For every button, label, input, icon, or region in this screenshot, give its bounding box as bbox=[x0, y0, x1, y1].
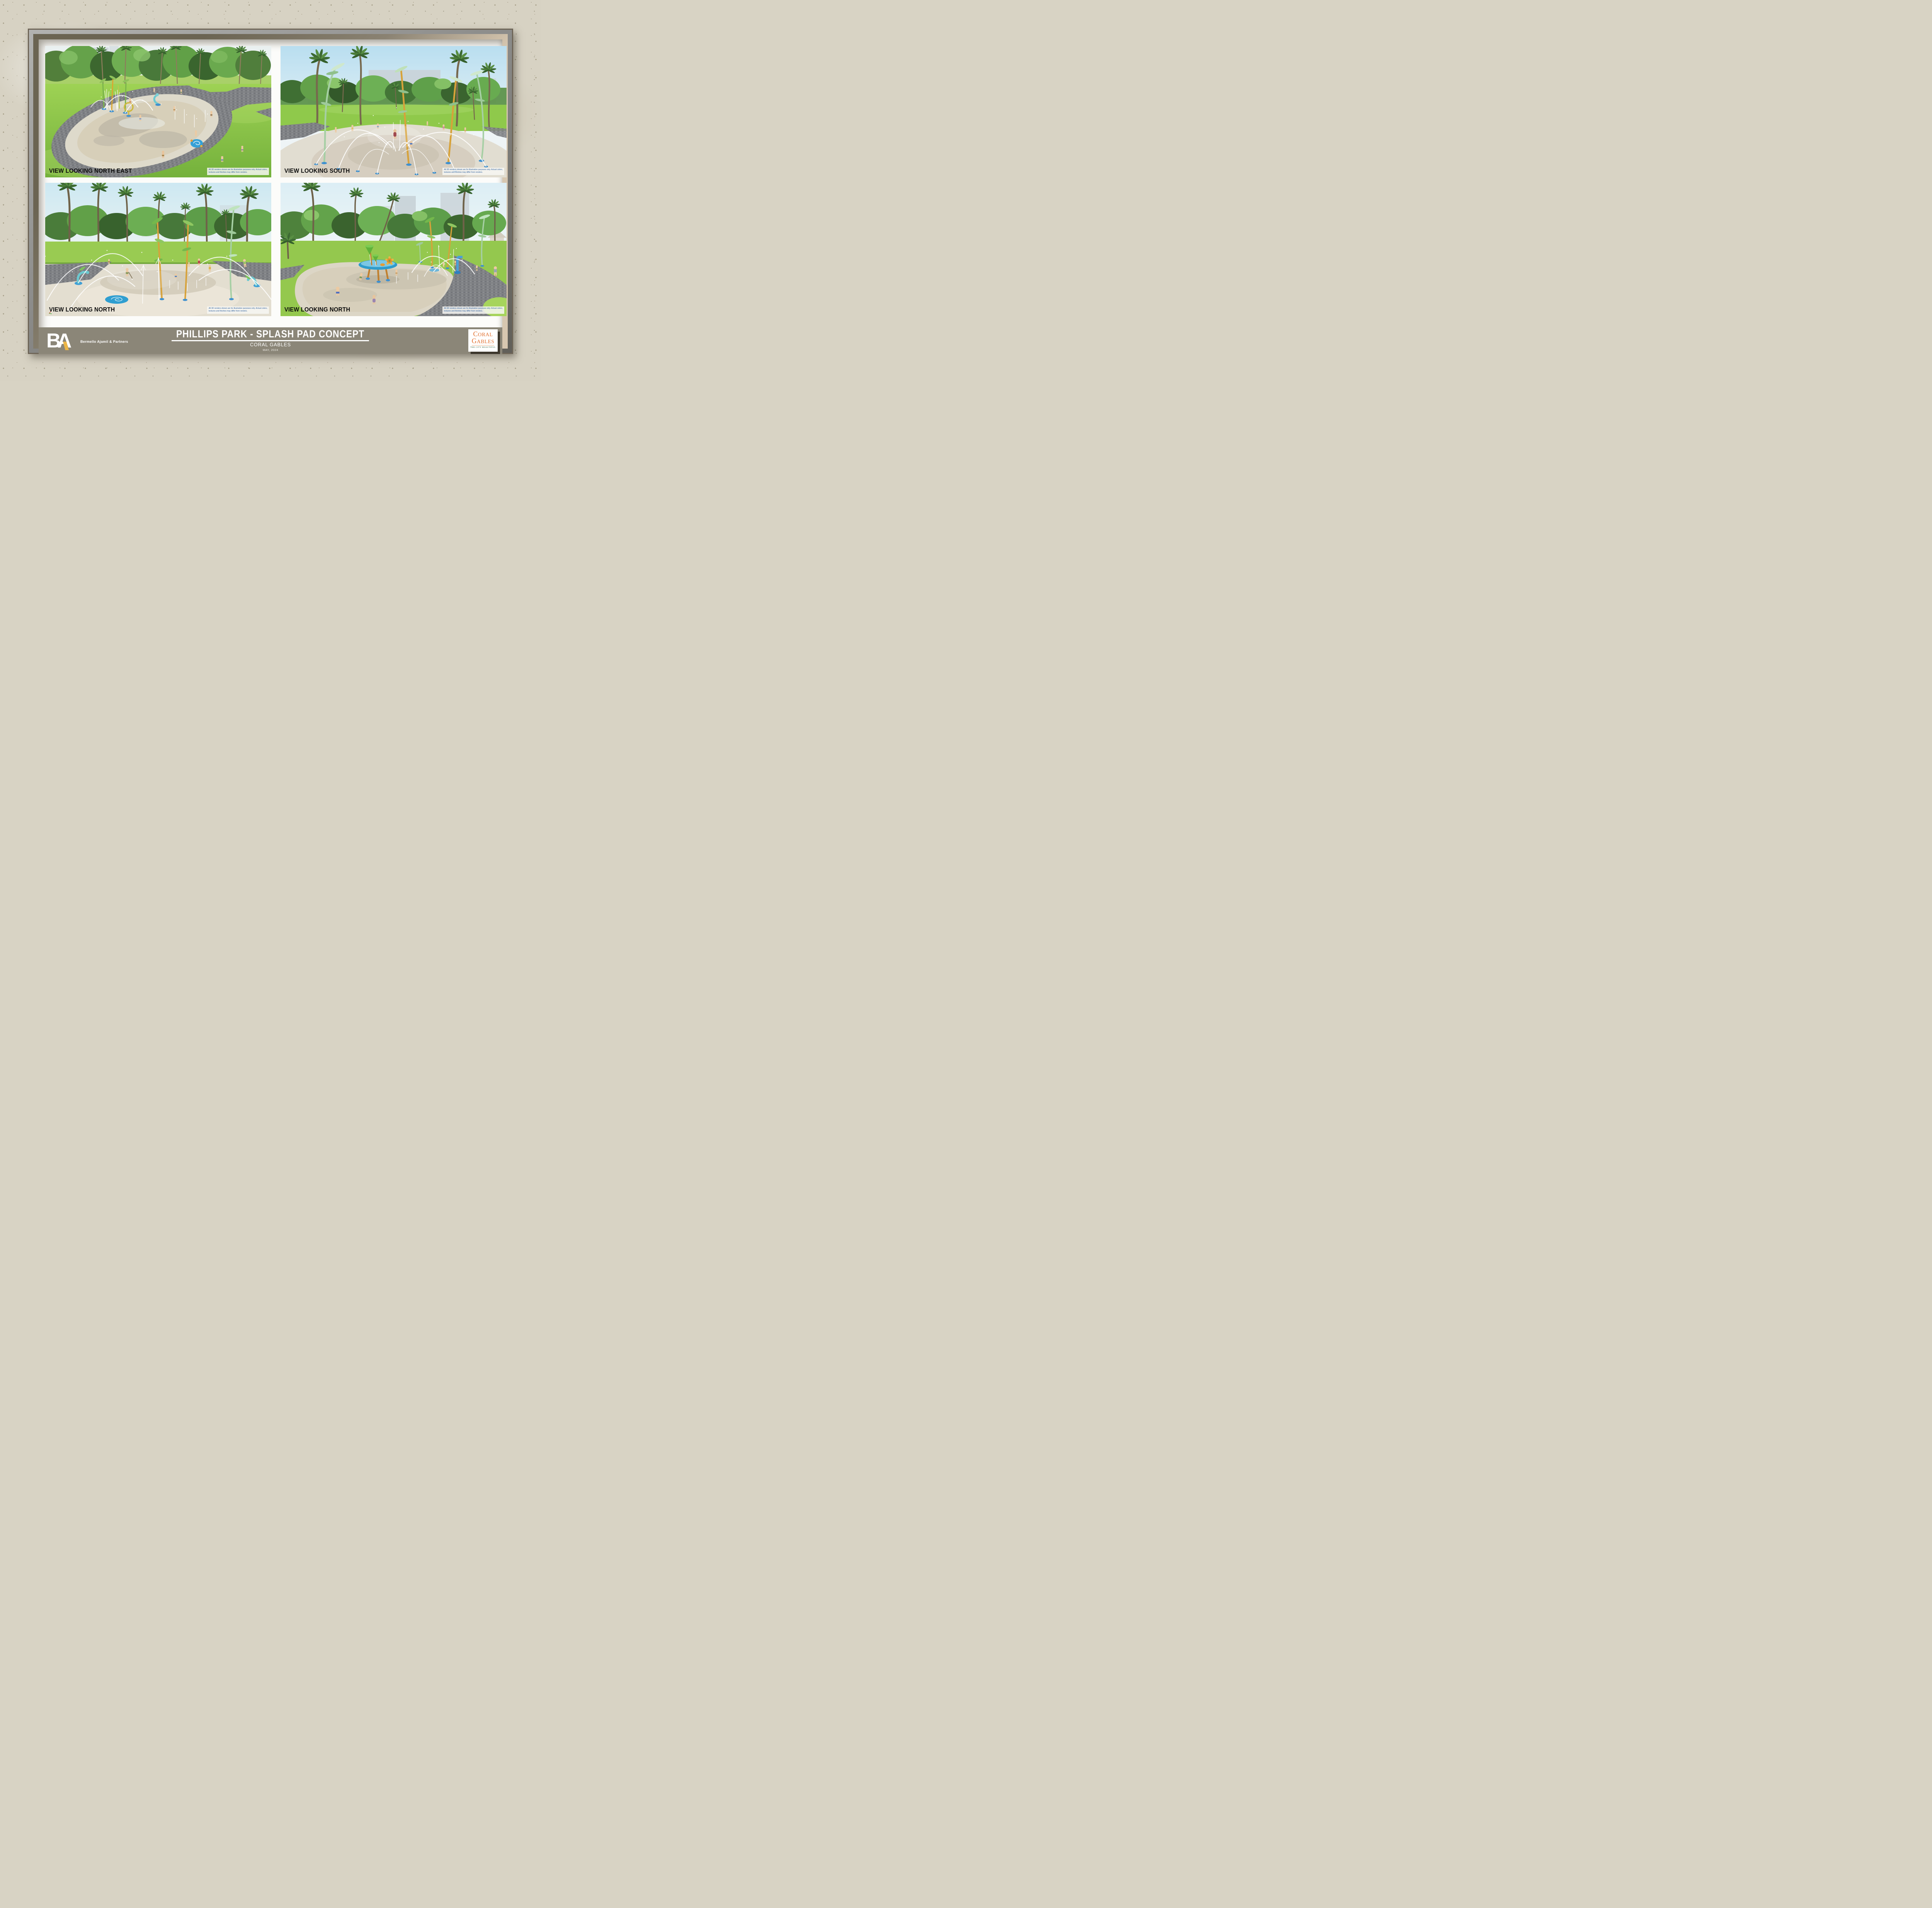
title-block: PHILLIPS PARK - SPLASH PAD CONCEPT CORAL… bbox=[135, 328, 406, 352]
coral-gables-logo-line2: GABLES bbox=[468, 338, 498, 345]
view-label: VIEW LOOKING SOUTH bbox=[284, 168, 350, 175]
render-panel-north-ground: VIEW LOOKING NORTH All 3D renders shown … bbox=[45, 183, 271, 316]
render-panel-south: VIEW LOOKING SOUTH All 3D renders shown … bbox=[281, 46, 507, 177]
render-illustration-north-elevated bbox=[281, 183, 507, 316]
render-illustration-north-ground bbox=[45, 183, 271, 316]
monogram-letter-a: A bbox=[57, 330, 72, 350]
disclaimer-line: All 3D renders shown are for illustratio… bbox=[209, 169, 267, 172]
disclaimer-line: textures and finishes may differ from re… bbox=[209, 310, 267, 313]
disclaimer-line: textures and finishes may differ from re… bbox=[444, 310, 503, 313]
board-date: MAY, 2024 bbox=[135, 348, 406, 352]
render-panel-northeast: VIEW LOOKING NORTH EAST All 3D renders s… bbox=[45, 46, 271, 177]
frame-gray-band: VIEW LOOKING NORTH EAST All 3D renders s… bbox=[29, 30, 512, 353]
coral-gables-tagline: THE CITY BEAUTIFUL bbox=[468, 346, 498, 349]
title-bar: B A Bermello Ajamil & Partners PHILLIPS … bbox=[39, 327, 502, 354]
picture-frame: VIEW LOOKING NORTH EAST All 3D renders s… bbox=[28, 29, 513, 354]
coral-gables-logo-line1: CORAL bbox=[468, 331, 498, 338]
coral-gables-logo: CORAL GABLES THE CITY BEAUTIFUL bbox=[468, 329, 498, 352]
render-disclaimer: All 3D renders shown are for illustratio… bbox=[442, 306, 504, 314]
board-subtitle: CORAL GABLES bbox=[135, 342, 406, 347]
disclaimer-line: All 3D renders shown are for illustratio… bbox=[209, 307, 267, 310]
view-label: VIEW LOOKING NORTH bbox=[284, 306, 350, 313]
view-label: VIEW LOOKING NORTH EAST bbox=[49, 168, 132, 175]
disclaimer-line: textures and finishes may differ from re… bbox=[444, 171, 503, 174]
ba-monogram-icon: B A bbox=[46, 330, 80, 350]
presentation-board: VIEW LOOKING NORTH EAST All 3D renders s… bbox=[0, 0, 541, 381]
white-mat: VIEW LOOKING NORTH EAST All 3D renders s… bbox=[39, 39, 502, 343]
render-illustration-south bbox=[281, 46, 507, 177]
firm-name: Bermello Ajamil & Partners bbox=[80, 340, 128, 344]
view-label: VIEW LOOKING NORTH bbox=[49, 306, 115, 313]
disclaimer-line: All 3D renders shown are for illustratio… bbox=[444, 307, 503, 310]
disclaimer-line: textures and finishes may differ from re… bbox=[209, 171, 267, 174]
coral-gables-logo-rule bbox=[472, 345, 494, 346]
render-disclaimer: All 3D renders shown are for illustratio… bbox=[442, 168, 504, 175]
render-illustration-northeast bbox=[45, 46, 271, 177]
render-panel-north-elevated: VIEW LOOKING NORTH All 3D renders shown … bbox=[281, 183, 507, 316]
render-disclaimer: All 3D renders shown are for illustratio… bbox=[207, 306, 269, 314]
disclaimer-line: All 3D renders shown are for illustratio… bbox=[444, 169, 503, 172]
frame-inner-lip: VIEW LOOKING NORTH EAST All 3D renders s… bbox=[33, 34, 508, 349]
board-title: PHILLIPS PARK - SPLASH PAD CONCEPT bbox=[172, 328, 369, 341]
render-disclaimer: All 3D renders shown are for illustratio… bbox=[207, 168, 269, 175]
